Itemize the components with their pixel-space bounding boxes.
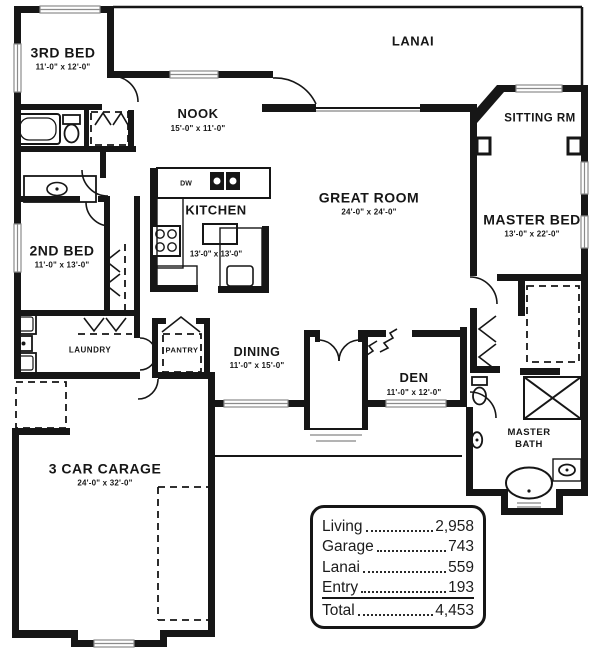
range-fixture: [152, 226, 180, 256]
room-label-master-bed: MASTER BED13'-0" x 22'-0": [483, 211, 581, 238]
room-label-lanai: LANAI: [392, 35, 434, 50]
floor-plan-drawing: [0, 0, 600, 657]
dot-leader: [363, 571, 446, 573]
table-row-entry: Entry 193: [322, 577, 474, 600]
room-label-dining: DINING11'-0" x 15'-0": [230, 345, 285, 371]
door-arcs: [82, 76, 497, 418]
room-label-garage: 3 CAR CARAGE24'-0" x 32'-0": [49, 460, 162, 487]
room-label-great-room: GREAT ROOM24'-0" x 24'-0": [319, 189, 419, 216]
master-toilet-fixture: [472, 377, 487, 405]
table-row-total: Total 4,453: [322, 599, 474, 620]
room-label-den: DEN11'-0" x 12'-0": [387, 371, 442, 397]
master-tub-fixture: [506, 468, 552, 499]
table-row-lanai: Lanai 559: [322, 556, 474, 577]
column-markers: [477, 138, 581, 154]
room-label-master-bath: MASTER BATH: [497, 427, 561, 451]
dishwasher-label: DW: [180, 181, 192, 188]
counter-appliance: [227, 266, 253, 286]
shower-fixture: [524, 377, 581, 419]
table-row-living: Living 2,958: [322, 515, 474, 536]
room-label-sitting-rm: SITTING RM: [504, 112, 575, 125]
area-summary-table: Living 2,958 Garage 743 Lanai 559 Entry …: [310, 505, 486, 629]
kitchen-dims: 13'-0" x 13'-0": [190, 250, 242, 259]
bathtub-fixture: [16, 114, 60, 144]
master-sink-right-fixture: [553, 459, 581, 481]
dot-leader: [366, 530, 434, 532]
dot-leader: [361, 591, 446, 593]
room-label-laundry: LAUNDRY: [69, 345, 111, 354]
toilet-fixture: [63, 115, 80, 143]
room-label-kitchen: KITCHEN: [185, 204, 246, 219]
room-label-pantry: PANTRY: [166, 347, 199, 356]
room-label-nook: NOOK15'-0" x 11'-0": [171, 107, 226, 133]
room-label-2nd-bed: 2ND BED11'-0" x 13'-0": [30, 242, 95, 269]
windows: [14, 6, 588, 647]
room-label-3rd-bed: 3RD BED11'-0" x 12'-0": [31, 44, 96, 71]
table-row-garage: Garage 743: [322, 536, 474, 557]
master-sink-left-fixture: [472, 432, 482, 448]
kitchen-sink-fixture: [210, 172, 240, 190]
floor-plan: LANAI 3RD BED11'-0" x 12'-0" NOOK15'-0" …: [0, 0, 600, 657]
dot-leader: [377, 550, 446, 552]
dot-leader: [358, 614, 433, 616]
